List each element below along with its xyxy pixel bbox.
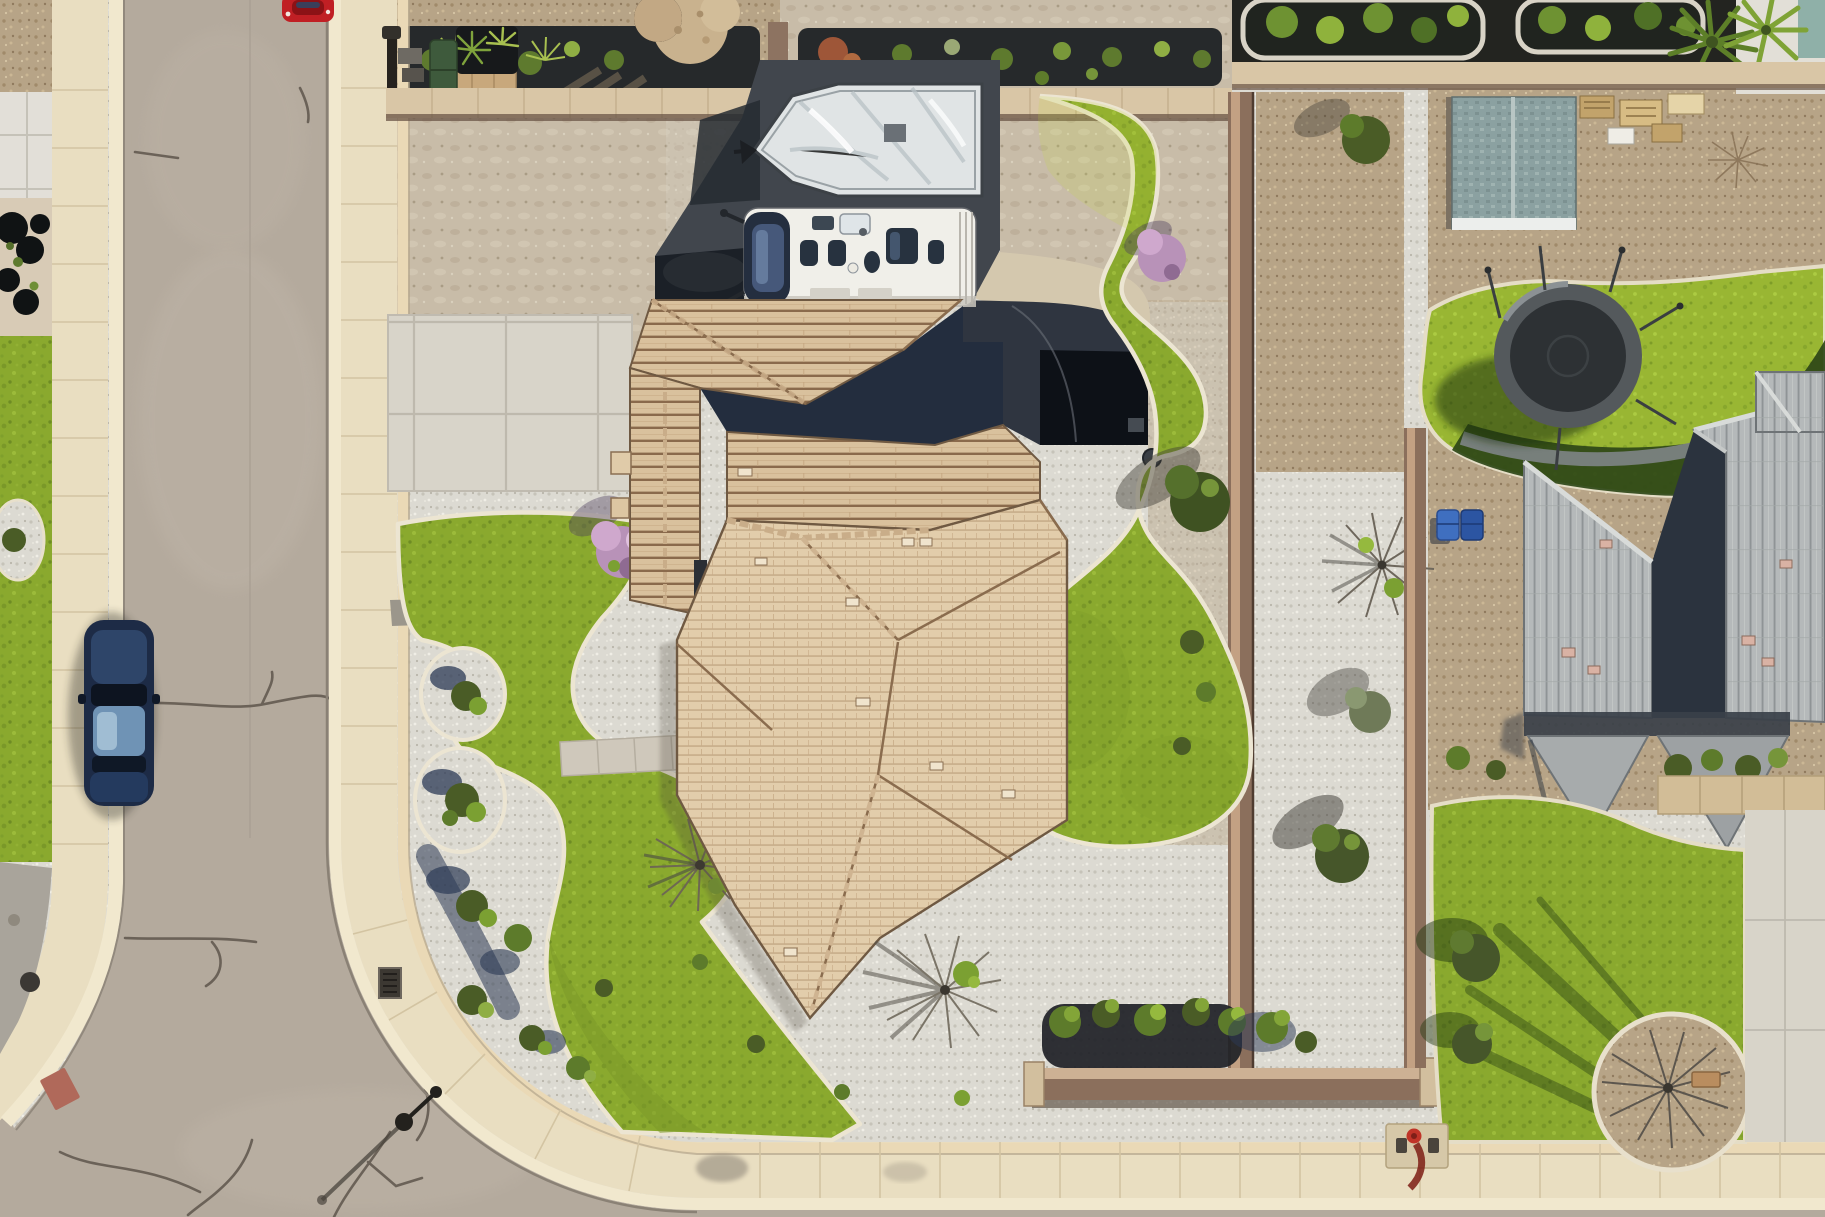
chimney2: [611, 498, 629, 518]
left-gravel-top: [0, 0, 52, 92]
sedan-mirror-right: [152, 694, 160, 704]
trampoline-mat: [1510, 300, 1626, 412]
pad-dark-blotch: [663, 252, 747, 292]
rv-hatch2: [858, 288, 892, 299]
rv-window1: [800, 240, 818, 266]
dark-paver1: [398, 48, 422, 64]
red-car: [282, 0, 334, 22]
mailbox-post: [387, 30, 397, 92]
sedan-trunk: [90, 772, 148, 802]
southeast-wall-shadow: [1032, 1100, 1434, 1108]
screenshot-stage: [0, 0, 1825, 1217]
left-neighbor-strip: [0, 0, 52, 1054]
nf-circle-bed: [1594, 1014, 1750, 1170]
small-bush1: [692, 954, 708, 970]
ac-unit: [1128, 418, 1144, 432]
concrete-pad: [388, 315, 632, 491]
left-pocket-bush: [2, 528, 26, 552]
rv: [720, 208, 976, 307]
sidewalk-stain: [696, 1154, 748, 1182]
storm-drain: [379, 968, 401, 998]
blue-sedan: [68, 612, 160, 820]
left-lawn-strip: [0, 336, 52, 862]
hydrant-valve1: [1396, 1138, 1407, 1153]
rv-window2: [828, 240, 846, 266]
small-tuft: [954, 1090, 970, 1106]
mauve-tree-light: [1137, 229, 1163, 255]
nh-garage-roof: [1756, 372, 1825, 432]
rv-hatch1: [810, 288, 850, 299]
sedan-hood: [91, 630, 147, 684]
southeast-wall-top: [1032, 1068, 1434, 1079]
mauve-tree-dark: [1164, 264, 1180, 280]
rv-roof-vent: [812, 216, 834, 230]
east-wall-top: [1231, 92, 1240, 1080]
hydrant-valve2: [1428, 1138, 1439, 1153]
sedan-rear-window: [92, 756, 146, 773]
sedan-mirror-left: [78, 694, 86, 704]
blue-bins: [1430, 510, 1483, 544]
dark-paver2: [402, 68, 424, 82]
strip-bush-top-light: [1340, 114, 1364, 138]
nh-front-eave-shadow: [1524, 712, 1790, 736]
rv-glass-glint: [756, 230, 768, 284]
east-bush1: [1180, 630, 1204, 654]
sedan-glass-glint: [97, 712, 117, 750]
wall-pillar-west: [1024, 1062, 1044, 1106]
sidewalk-stain2: [883, 1162, 927, 1182]
left-paver-pad: [0, 92, 52, 198]
boat-cover-patch: [884, 124, 906, 142]
neighbor-front-yard: [1386, 746, 1825, 1188]
rv-window3: [864, 251, 880, 273]
blue-bin-1: [1437, 510, 1459, 540]
ne-tuft1: [1035, 71, 1049, 85]
aerial-photo-scene: [0, 0, 1825, 1217]
corner-dark-blob: [20, 972, 40, 992]
neighbor-west-wall-top: [1407, 428, 1415, 1068]
ne-tuft2: [1086, 68, 1098, 80]
shed-west-shadow: [1446, 97, 1452, 229]
far-neighbor-top: [1232, 0, 1825, 94]
east-bush2: [1196, 682, 1216, 702]
garden-shed: [1446, 97, 1576, 230]
olive-tree-mid: [1165, 465, 1199, 499]
sedan-windshield: [91, 684, 147, 706]
chimney1: [611, 452, 631, 474]
rv-window5: [928, 240, 944, 264]
pavement-light-patch2: [145, 30, 305, 250]
blue-bin-2: [1461, 510, 1483, 540]
hydrant-cap-center: [1411, 1133, 1417, 1139]
east-bush3: [1173, 737, 1191, 755]
small-bush3: [834, 1084, 850, 1100]
mailbox: [382, 26, 401, 39]
far-rear-wall-shadow: [1232, 84, 1825, 90]
corner-pebble: [8, 914, 20, 926]
small-bush2: [747, 1035, 765, 1053]
pavement-light-patch: [138, 250, 322, 590]
bench: [1692, 1072, 1720, 1087]
rv-window4-glint: [890, 232, 900, 260]
olive-tree-light: [1201, 479, 1219, 497]
shed-trim: [1452, 218, 1576, 230]
